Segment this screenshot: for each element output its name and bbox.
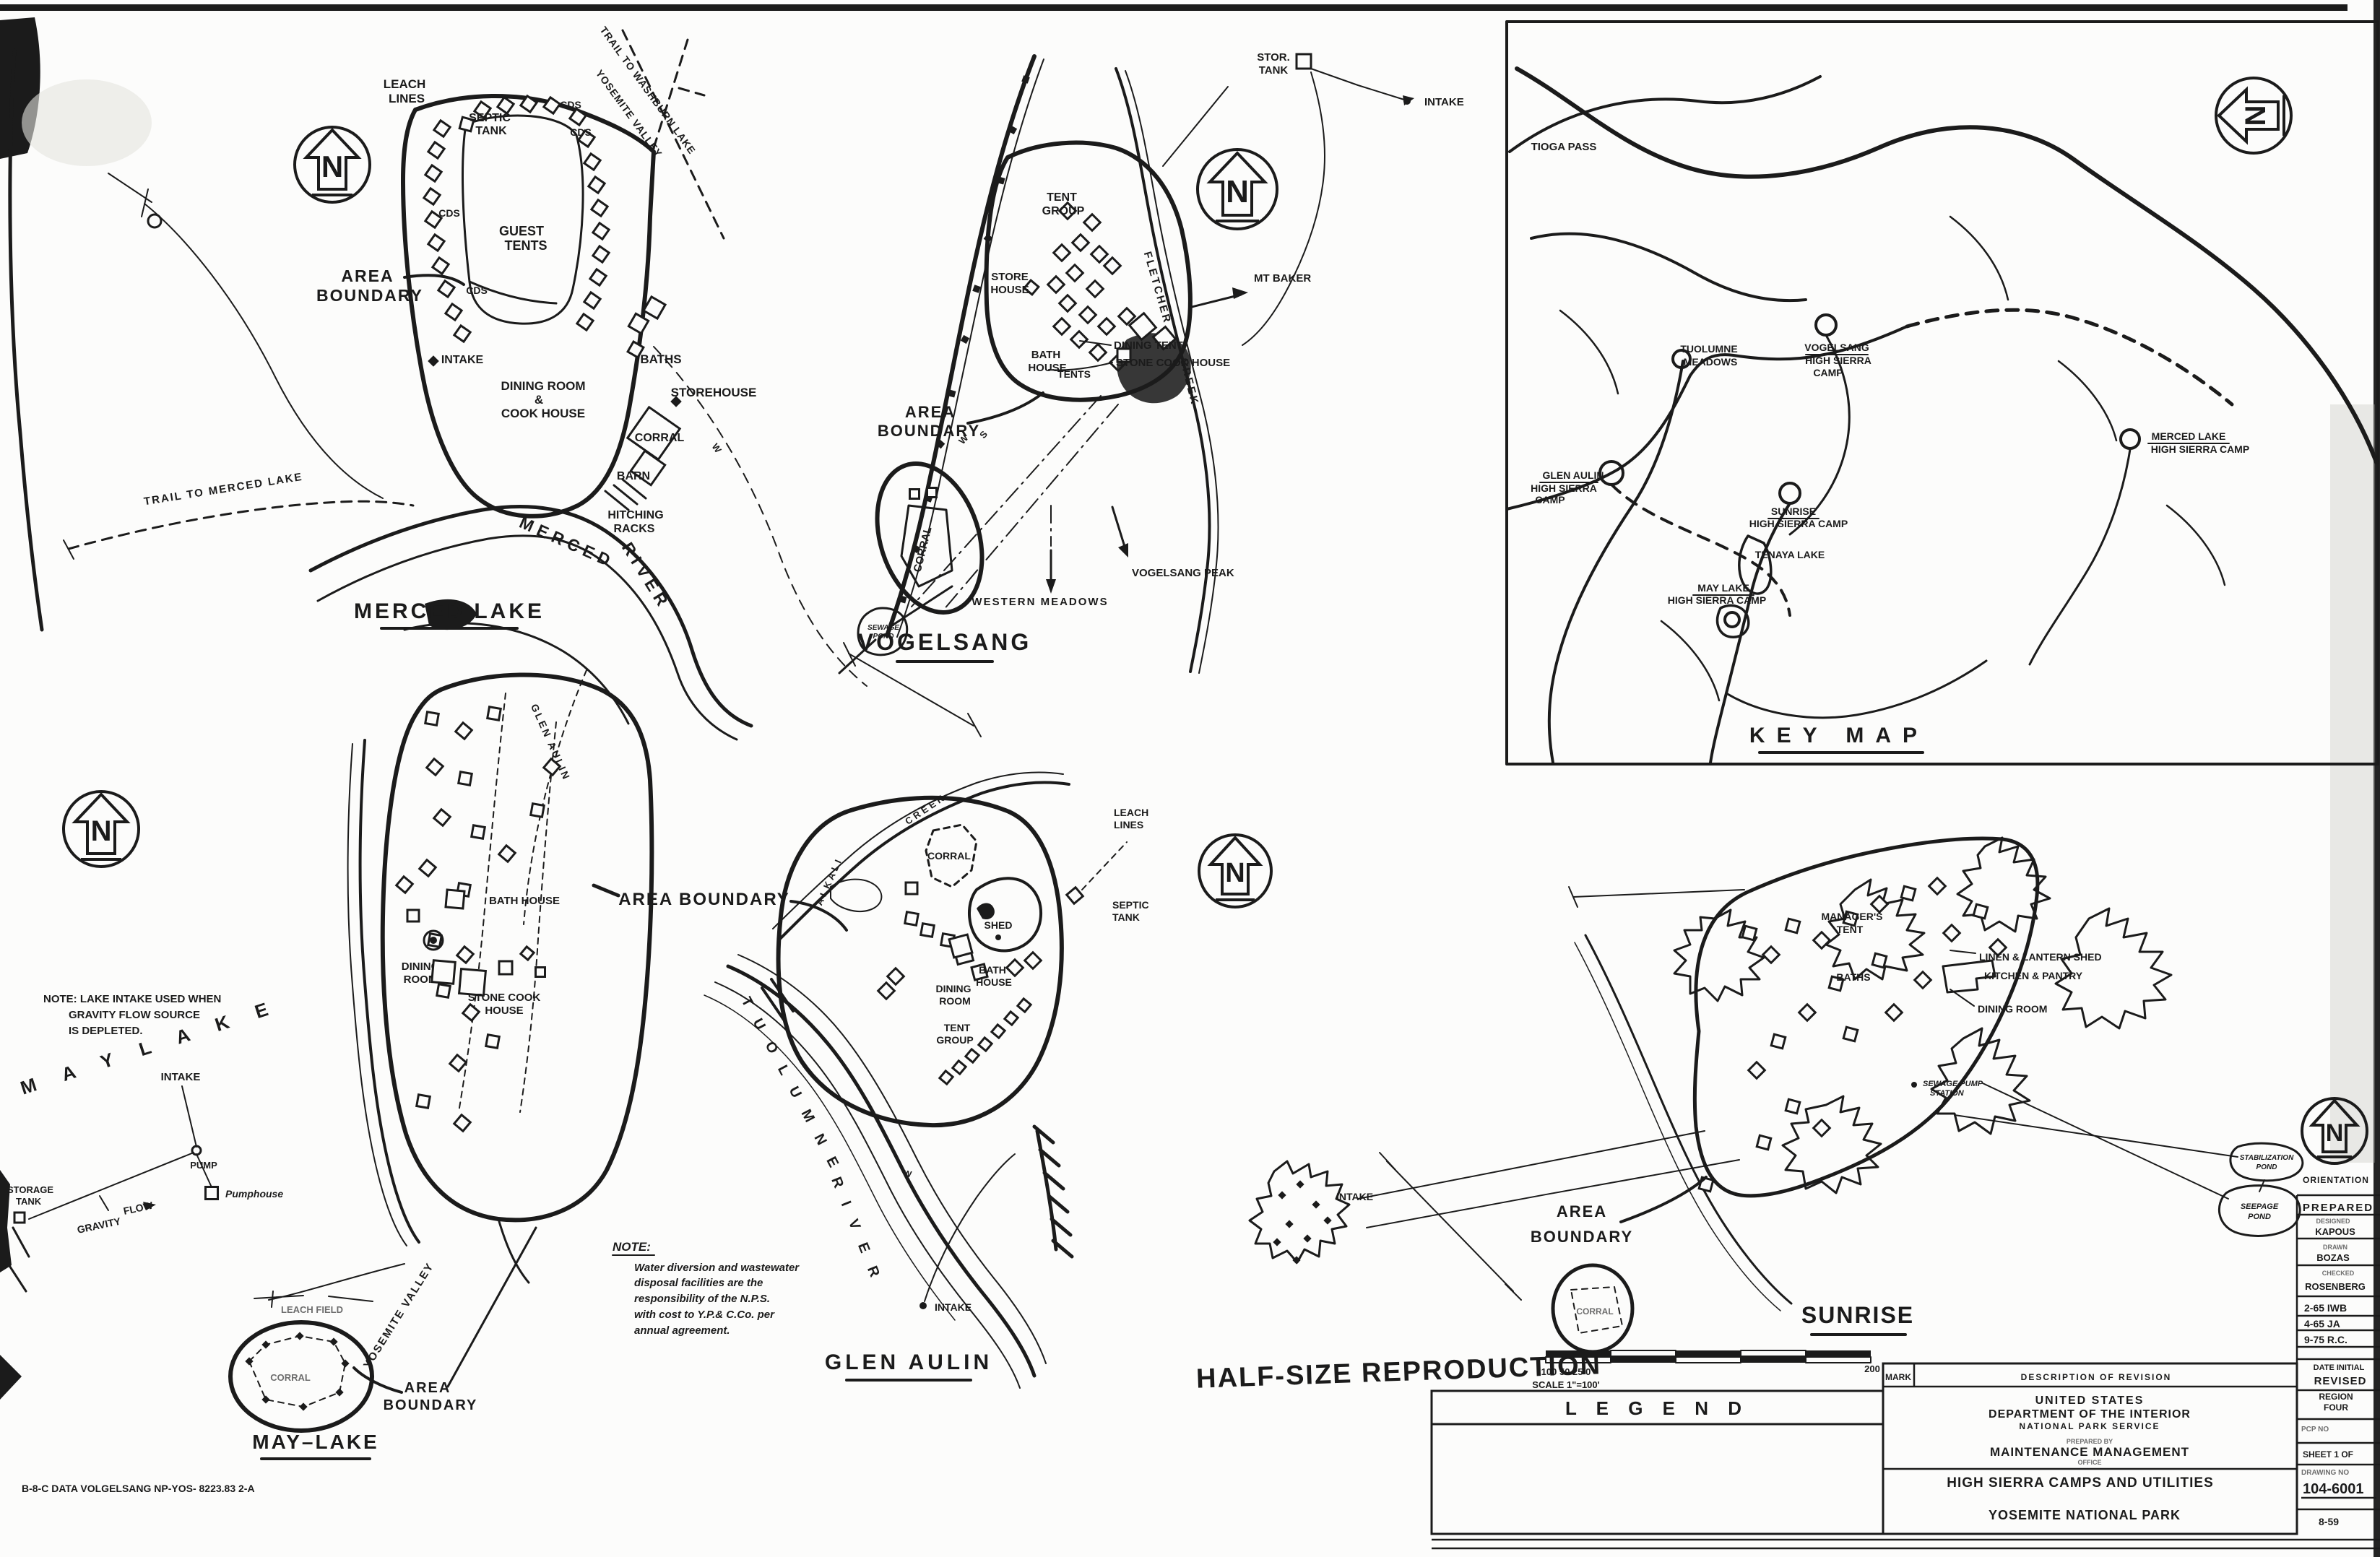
fence-posts xyxy=(246,1333,348,1410)
north-arrow-icon: N xyxy=(1199,835,1271,907)
store-house-label: STORE xyxy=(991,271,1028,283)
vogelsang-camp-label: CAMP xyxy=(1813,367,1843,378)
date-value: 8-59 xyxy=(2319,1516,2339,1527)
area-boundary-label: BOUNDARY xyxy=(1531,1228,1633,1246)
building-symbol xyxy=(434,810,451,826)
reference-number: B-8-C DATA VOLGELSANG NP-YOS- 8223.83 2-… xyxy=(22,1483,255,1494)
drawing-canvas: N LEACH LINES SEPTIC TANK CDS CDS CDS CD… xyxy=(0,0,2380,1557)
building-symbol xyxy=(921,924,935,937)
note-text: responsibility of the N.P.S. xyxy=(634,1293,770,1305)
building-symbol xyxy=(1771,1034,1786,1049)
stor-tank-label: TANK xyxy=(1259,64,1289,77)
baths-label: BATHS xyxy=(640,352,681,366)
well-dot xyxy=(430,937,437,944)
sunrise-title: SUNRISE xyxy=(1801,1302,1914,1328)
building-symbol xyxy=(1871,896,1888,913)
building-symbol xyxy=(1087,281,1104,298)
building-symbol xyxy=(1304,1236,1310,1241)
area-boundary-label: AREA xyxy=(341,266,394,285)
tuolumne-meadows-label: MEADOWS xyxy=(1684,356,1738,368)
north-arrow-icon: N xyxy=(1198,149,1277,229)
building-symbol xyxy=(1274,1239,1280,1245)
drawn-header: DRAWN xyxy=(2323,1244,2347,1251)
revision-sidebar: PREPARED DESIGNED KAPOUS DRAWN BOZAS CHE… xyxy=(2297,1195,2380,1534)
building-symbol xyxy=(1091,246,1108,263)
building-symbol xyxy=(940,1071,953,1084)
building-symbol xyxy=(499,846,516,862)
building-symbol xyxy=(1973,904,1988,919)
vogelsang-camp-label: VOGELSANG xyxy=(1804,342,1869,353)
building-symbol xyxy=(1886,1005,1903,1021)
mt-baker-arrowhead xyxy=(1232,287,1248,299)
sewer-lines xyxy=(1955,1083,2238,1199)
building-symbol xyxy=(1814,1120,1830,1137)
sunrise-area-boundary-line xyxy=(1695,838,2038,1196)
area-boundary-leader xyxy=(354,1368,402,1392)
area-boundary-leader xyxy=(1621,1177,1706,1222)
sunrise-camp-label: HIGH SIERRA CAMP xyxy=(1749,518,1848,529)
office-label: OFFICE xyxy=(2078,1459,2102,1466)
building-symbol xyxy=(927,488,937,498)
area-boundary-leader xyxy=(968,393,1043,423)
building-symbol xyxy=(429,357,438,366)
leach-field-lines xyxy=(254,1264,404,1307)
stabilization-pond-label: STABILIZATION xyxy=(2240,1154,2294,1162)
drawing-number-value: 104-6001 xyxy=(2303,1481,2364,1497)
lake-shoreline2 xyxy=(348,744,407,1246)
building-symbol xyxy=(1084,214,1101,231)
building-symbol xyxy=(1699,1177,1713,1192)
glen-aulin-camp-label: CAMP xyxy=(1535,494,1565,506)
vogelsang-ridge-line xyxy=(887,56,1034,636)
designed-header: DESIGNED xyxy=(2316,1218,2350,1225)
pipeline-lines xyxy=(64,173,383,559)
section-line xyxy=(844,643,981,737)
building-symbol xyxy=(1799,1005,1816,1021)
building-symbol xyxy=(628,313,648,333)
building-symbol xyxy=(1286,1221,1292,1227)
water-line-tag: W xyxy=(710,441,724,455)
north-arrow-icon: N xyxy=(295,127,370,202)
managers-tent-label: TENT xyxy=(1837,924,1864,935)
building-symbol xyxy=(592,200,607,216)
trail-to-yosemite-valley-label: YOSEMITE VALLEY xyxy=(594,68,665,160)
stabilization-pond-outline xyxy=(2230,1143,2303,1181)
north-letter: N xyxy=(1226,174,1249,209)
glen-aulin-building-symbols xyxy=(878,882,1042,999)
building-symbol xyxy=(454,1115,471,1132)
building-symbol xyxy=(438,281,454,297)
tenaya-lake-label: TENAYA LAKE xyxy=(1755,549,1825,560)
tuolumne-meadows-label: TUOLUMNE xyxy=(1680,343,1737,355)
merced-river-bank2 xyxy=(318,536,737,740)
building-symbol xyxy=(1297,1181,1303,1187)
building-symbol xyxy=(263,1397,269,1402)
seepage-pond-label: SEEPAGE xyxy=(2241,1202,2279,1211)
merced-lake-camp-label: HIGH SIERRA CAMP xyxy=(2151,443,2249,455)
region-label: REGION xyxy=(2319,1392,2353,1402)
building-symbol xyxy=(1054,318,1070,335)
note-text: IS DEPLETED. xyxy=(69,1025,143,1037)
building-symbol xyxy=(979,1038,992,1051)
shared-area-boundary-label: AREA BOUNDARY xyxy=(618,890,790,909)
building-symbol xyxy=(1060,295,1076,312)
corral-buildings xyxy=(910,488,937,499)
scale-number-right: 200 xyxy=(1864,1363,1880,1374)
water-line-tag: W xyxy=(902,1168,913,1179)
intake-label: INTAKE xyxy=(1424,96,1464,108)
building-symbol xyxy=(1786,919,1800,933)
legend-title: L E G E N D xyxy=(1565,1397,1749,1419)
area-boundary-label: BOUNDARY xyxy=(316,286,423,305)
north-arrow-icon: N xyxy=(64,791,139,867)
sunrise-camp-label: SUNRISE xyxy=(1771,506,1816,517)
creek-line2 xyxy=(1575,942,1780,1311)
hatched-ridge xyxy=(1034,1127,1072,1257)
note-text: with cost to Y.P.& C.Co. per xyxy=(634,1309,775,1321)
tents-label: TENTS xyxy=(1057,368,1091,380)
vogelsang-camp-label: HIGH SIERRA xyxy=(1805,355,1871,366)
dining-room-label: DINING xyxy=(936,983,972,994)
marsh-ticks xyxy=(1274,1181,1330,1263)
building-symbol xyxy=(1944,925,1960,942)
building-symbol xyxy=(397,877,413,893)
department-label: DEPARTMENT OF THE INTERIOR xyxy=(1989,1408,2191,1421)
cds-label: CDS xyxy=(560,99,581,110)
building-symbol xyxy=(331,1339,337,1345)
building-symbol xyxy=(1901,886,1916,901)
baths-label: BATHS xyxy=(1836,971,1870,983)
tioga-pass-label: TIOGA PASS xyxy=(1531,141,1597,153)
building-symbol xyxy=(1786,1099,1800,1114)
leach-line-dashed xyxy=(1082,842,1127,890)
area-boundary-leader xyxy=(404,275,464,285)
dining-room-label: & xyxy=(535,393,543,407)
glen-aulin-area-boundary-line xyxy=(779,798,1062,1125)
corral-label: CORRAL xyxy=(270,1372,311,1383)
building-symbol xyxy=(457,947,474,963)
merced-area-boundary-line xyxy=(403,96,654,516)
valley-trail xyxy=(448,1219,536,1387)
dining-room-label: DINING ROOM xyxy=(1978,1003,2047,1015)
building-symbol xyxy=(949,391,956,397)
septic-tank-label: TANK xyxy=(475,125,507,137)
building-symbol xyxy=(446,890,464,908)
pipe-lines xyxy=(29,1086,212,1219)
scale-numbers-left: 100 50 25 0 xyxy=(1541,1366,1591,1377)
creek-line1 xyxy=(1585,935,1791,1304)
tent-group-label: GROUP xyxy=(936,1034,973,1046)
building-symbol xyxy=(992,1025,1005,1038)
leach-lines-label: LINES xyxy=(1114,819,1143,830)
tuolumne-river-label: T U O L U M N E xyxy=(738,994,844,1175)
merced-lake-camp-label: MERCED LAKE xyxy=(2152,430,2226,442)
peak-arrowhead xyxy=(1118,543,1128,558)
cds-label: CDS xyxy=(438,207,460,219)
building-symbol xyxy=(434,121,450,136)
building-symbol xyxy=(577,314,593,330)
linen-lantern-shed-label: LINEN & LANTERN SHED xyxy=(1979,951,2102,963)
sunrise-map: N INTAKE MANAGER'S TENT BATHS LINEN & LA… xyxy=(1199,835,2369,1352)
merced-lake-map: N LEACH LINES SEPTIC TANK CDS CDS CDS CD… xyxy=(64,25,981,740)
area-boundary-label: AREA xyxy=(905,403,956,421)
building-symbol xyxy=(593,223,609,239)
marsh-outline xyxy=(1250,1161,1349,1262)
may-lake-area-boundary-line xyxy=(383,675,652,1220)
building-symbol xyxy=(456,723,472,740)
stabilization-pond-label: POND xyxy=(2256,1163,2277,1171)
building-symbol xyxy=(590,269,606,285)
building-symbol xyxy=(450,1055,467,1072)
building-symbol xyxy=(427,759,443,776)
maintenance-management-label: MAINTENANCE MANAGEMENT xyxy=(1990,1445,2189,1459)
guest-tents-label: GUEST xyxy=(499,224,544,238)
storage-tank-label: TANK xyxy=(16,1196,42,1207)
label-leaders xyxy=(1950,950,1976,1006)
septic-tank-label: SEPTIC xyxy=(1112,899,1149,911)
stone-cook-house-label: STONE COOK HOUSE xyxy=(1116,357,1230,369)
building-symbol xyxy=(521,947,534,960)
building-symbol xyxy=(437,984,451,998)
building-symbol xyxy=(432,960,456,984)
building-symbol xyxy=(1023,77,1029,83)
note-text: NOTE: LAKE INTAKE USED WHEN xyxy=(43,993,221,1005)
united-states-label: UNITED STATES xyxy=(2035,1395,2145,1407)
storage-tank-label: STORAGE xyxy=(7,1184,53,1195)
pump-label: PUMP xyxy=(190,1160,217,1171)
tent-group-label: TENT xyxy=(944,1022,971,1033)
corral-fence xyxy=(249,1336,345,1407)
building-symbol xyxy=(446,304,462,320)
north-letter: N xyxy=(321,149,343,183)
building-symbol xyxy=(878,983,895,999)
checked-header: CHECKED xyxy=(2322,1270,2355,1277)
building-symbol xyxy=(472,825,485,839)
building-symbol xyxy=(584,154,600,170)
bath-house-label: BATH xyxy=(979,964,1006,976)
corral-label: CORRAL xyxy=(927,850,971,862)
building-symbol xyxy=(428,142,444,158)
building-symbol xyxy=(420,860,436,877)
shed-dot xyxy=(995,934,1001,940)
north-arrow-icon: N xyxy=(2216,78,2291,153)
leach-lines-label: LEACH xyxy=(1114,807,1148,818)
region-label: FOUR xyxy=(2324,1402,2348,1413)
legend-box: L E G E N D xyxy=(1432,1391,1883,1534)
merced-trail-dashed xyxy=(69,501,413,549)
drawn-by-value: BOZAS xyxy=(2316,1252,2350,1263)
area-leader-left xyxy=(594,885,618,895)
building-symbol xyxy=(1018,999,1031,1012)
scale-label: SCALE 1"=100' xyxy=(1532,1379,1599,1390)
trail-to-merced-lake-label: TRAIL TO MERCED LAKE xyxy=(143,471,304,508)
building-symbol xyxy=(454,326,470,342)
sheet-title: HIGH SIERRA CAMPS AND UTILITIES xyxy=(1947,1475,2214,1491)
building-symbol xyxy=(1007,960,1024,976)
building-symbol xyxy=(463,1005,480,1021)
managers-tent-label: MANAGER'S xyxy=(1822,911,1883,922)
north-letter: N xyxy=(1225,858,1245,888)
north-letter: N xyxy=(2326,1119,2344,1147)
septic-tank-label: TANK xyxy=(1112,911,1140,923)
seepage-pond-label: POND xyxy=(2248,1213,2271,1221)
corral-label: CORRAL xyxy=(1576,1306,1613,1317)
area-boundary-label: AREA xyxy=(404,1380,451,1396)
barn-label: BARN xyxy=(617,470,650,482)
building-symbol xyxy=(1090,344,1107,361)
mark-header: MARK xyxy=(1885,1372,1911,1382)
building-symbol xyxy=(499,961,512,974)
key-map: N TIOGA PASS TUOLUMN xyxy=(1507,22,2378,764)
stor-tank-pipes xyxy=(1242,69,1404,345)
building-symbol xyxy=(1067,888,1083,904)
prepared-by-label: PREPARED BY xyxy=(2067,1438,2113,1445)
may-lake-title: MAY–LAKE xyxy=(252,1431,378,1453)
building-symbol xyxy=(1325,1218,1330,1223)
building-symbol xyxy=(425,712,439,726)
description-of-revision-header: DESCRIPTION OF REVISION xyxy=(2021,1372,2172,1382)
drawing-no-label: DRAWING NO xyxy=(2301,1469,2349,1477)
pumphouse-symbol xyxy=(206,1187,218,1200)
north-letter: N xyxy=(2240,105,2272,126)
scan-artifacts xyxy=(0,0,2380,1557)
building-symbol xyxy=(906,882,917,894)
building-symbol xyxy=(1067,265,1083,282)
building-symbol xyxy=(428,235,444,251)
leach-lines-label: LEACH xyxy=(384,77,426,91)
merced-lake-title: MERCED LAKE xyxy=(354,599,545,623)
building-symbol xyxy=(953,1061,966,1074)
storage-tank-symbol xyxy=(1297,54,1311,69)
pump-station-dot xyxy=(1911,1082,1917,1088)
building-symbol xyxy=(417,1095,430,1109)
yosemite-valley-trail-label: YOSEMITE VALLEY xyxy=(361,1260,436,1371)
building-symbol xyxy=(488,707,501,721)
intake-dot xyxy=(919,1302,927,1309)
building-symbol xyxy=(337,1389,342,1395)
bath-house-label: BATH HOUSE xyxy=(489,895,560,907)
building-symbol xyxy=(14,1213,25,1223)
building-symbol xyxy=(263,1342,269,1348)
checked-by-value: ROSENBERG xyxy=(2305,1281,2366,1292)
building-symbol xyxy=(433,258,449,274)
designed-by-value: KAPOUS xyxy=(2315,1226,2355,1237)
hitching-racks-label: RACKS xyxy=(614,523,655,535)
building-symbol xyxy=(589,177,605,193)
building-symbol xyxy=(1872,953,1887,968)
septic-tank-symbol xyxy=(1067,888,1083,904)
area-boundary-label: AREA xyxy=(1557,1202,1607,1220)
tent-group-label: TENT xyxy=(1047,191,1077,204)
note-heading: NOTE: xyxy=(613,1240,651,1254)
building-symbol xyxy=(1005,1012,1018,1025)
revision-row-1: 2-65 IWB xyxy=(2304,1302,2347,1314)
building-symbol xyxy=(486,1035,500,1049)
sheet-of-label: SHEET 1 OF xyxy=(2303,1449,2353,1460)
cds-label: CDS xyxy=(570,126,592,138)
dining-tent-label: DINING TENT xyxy=(1114,339,1183,352)
may-lake-camp-label: MAY LAKE xyxy=(1697,582,1749,594)
footer: HALF-SIZE REPRODUCTION 100 50 25 0 200 S… xyxy=(1195,1350,1883,1534)
stor-tank-label: STOR. xyxy=(1257,51,1290,64)
septic-tank-label: SEPTIC xyxy=(469,112,511,124)
merced-river-label: RIVER xyxy=(618,539,675,613)
bath-house-label: HOUSE xyxy=(976,976,1012,988)
building-symbol xyxy=(1048,277,1065,293)
building-symbol xyxy=(342,1361,348,1366)
nps-label: NATIONAL PARK SERVICE xyxy=(2019,1421,2160,1431)
building-symbol xyxy=(974,286,980,292)
storage-tank-symbol xyxy=(14,1213,25,1223)
vogelsang-map: N STOR. TANK INTAKE TENT GROUP STORE HOU… xyxy=(839,51,1464,673)
dining-room-label: COOK HOUSE xyxy=(501,407,585,420)
building-symbol xyxy=(1080,307,1096,324)
leach-field-label: LEACH FIELD xyxy=(281,1304,343,1315)
building-symbol xyxy=(888,968,904,985)
building-symbol xyxy=(300,1404,306,1410)
building-symbol xyxy=(459,772,472,786)
building-symbol xyxy=(498,97,514,113)
building-symbol xyxy=(1279,1192,1285,1198)
building-symbol xyxy=(407,910,419,921)
note-text: disposal facilities are the xyxy=(634,1277,763,1289)
orientation-label: ORIENTATION xyxy=(2303,1175,2369,1185)
prepared-header: PREPARED xyxy=(2303,1202,2373,1214)
building-symbol xyxy=(1104,258,1121,274)
kitchen-pantry-label: KITCHEN & PANTRY xyxy=(1984,970,2083,981)
glen-aulin-title: GLEN AULIN xyxy=(825,1350,992,1374)
building-symbol xyxy=(1071,331,1088,348)
building-symbol xyxy=(1054,245,1070,261)
guest-tents-label: TENTS xyxy=(504,238,547,253)
building-symbol xyxy=(531,804,545,817)
building-symbol xyxy=(593,246,609,262)
hitching-rack-symbol xyxy=(605,480,646,510)
intake-symbol xyxy=(429,357,438,366)
revised-header: REVISED xyxy=(2314,1375,2367,1387)
building-symbol xyxy=(949,934,972,958)
cds-label: CDS xyxy=(466,285,488,296)
area-boundary-label: BOUNDARY xyxy=(878,422,980,440)
building-symbol xyxy=(206,1187,218,1200)
building-symbol xyxy=(910,490,919,499)
intake-label: INTAKE xyxy=(935,1301,972,1313)
glen-aulin-map: ALKALI CREEK LEACH LINES SEPTIC TANK COR… xyxy=(613,772,1149,1388)
revision-row-3: 9-75 R.C. xyxy=(2304,1334,2347,1345)
building-symbol xyxy=(1025,953,1042,969)
may-lake-tent-symbols xyxy=(397,707,561,1132)
peak-arrow xyxy=(1112,507,1125,549)
vogelsang-title: VOGELSANG xyxy=(858,629,1031,655)
building-symbol xyxy=(1757,1135,1771,1150)
building-symbol xyxy=(1763,947,1780,963)
building-symbol xyxy=(1742,926,1757,940)
western-meadows-label: WESTERN MEADOWS xyxy=(972,596,1108,608)
pumphouse-label: Pumphouse xyxy=(225,1188,283,1200)
drawing-sheet: N LEACH LINES SEPTIC TANK CDS CDS CDS CD… xyxy=(0,0,2380,1557)
mt-baker-label: MT BAKER xyxy=(1254,272,1311,285)
vogelsang-peak-label: VOGELSANG PEAK xyxy=(1132,567,1234,579)
merced-river-label: MERCED xyxy=(516,513,618,571)
building-symbol xyxy=(584,292,600,308)
building-symbol xyxy=(425,165,441,181)
leach-lines-label: LINES xyxy=(389,92,425,105)
building-symbol xyxy=(424,188,440,204)
building-symbol xyxy=(1099,318,1115,335)
hitching-racks-label: HITCHING xyxy=(607,509,663,521)
dining-room-label: ROOM xyxy=(939,995,971,1007)
building-symbol xyxy=(1843,1027,1858,1041)
